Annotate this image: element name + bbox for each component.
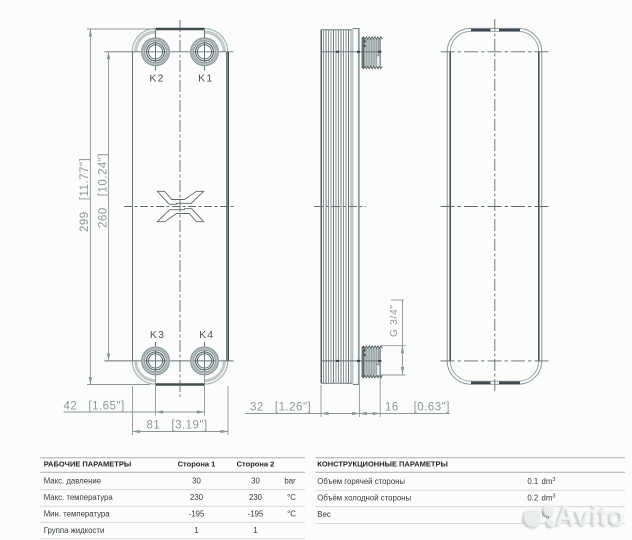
svg-text:260 [10.24"]: 260 [10.24"] [98,153,110,228]
svg-text:-195: -195 [248,510,264,519]
svg-text:Avito: Avito [556,500,626,531]
svg-text:Объем горячей стороны: Объем горячей стороны [317,477,405,486]
svg-text:Вес: Вес [317,510,331,519]
svg-text:K3: K3 [150,329,165,341]
svg-text:-195: -195 [189,510,205,519]
svg-text:°С: °С [287,510,296,519]
svg-text:K2: K2 [149,72,164,84]
svg-text:°С: °С [287,493,296,502]
svg-text:299 [11.77"]: 299 [11.77"] [79,158,91,232]
svg-text:G 3/4": G 3/4" [389,304,400,337]
svg-text:30: 30 [251,477,260,486]
svg-text:81 [3.19"]: 81 [3.19"] [147,420,208,432]
svg-text:Сторона 1: Сторона 1 [178,460,216,469]
svg-text:Макс. давление: Макс. давление [44,477,101,486]
svg-text:32 [1.26"]: 32 [1.26"] [250,402,311,414]
svg-text:0.2: 0.2 [527,494,538,503]
svg-text:0.1: 0.1 [527,477,538,486]
svg-text:Мин. температура: Мин. температура [44,510,111,519]
svg-text:30: 30 [192,477,201,486]
svg-text:K1: K1 [198,72,213,84]
svg-text:1: 1 [194,526,198,535]
svg-text:Макс. температура: Макс. температура [44,493,114,502]
svg-text:Группа жидкости: Группа жидкости [44,526,105,535]
svg-text:16 [0.63"]: 16 [0.63"] [385,402,450,414]
svg-text:Объём холодной стороны: Объём холодной стороны [317,494,411,503]
svg-text:1: 1 [253,526,257,535]
svg-text:K4: K4 [199,329,214,341]
svg-text:bar: bar [284,477,296,486]
svg-text:230: 230 [190,493,204,502]
svg-text:Сторона 2: Сторона 2 [237,460,275,469]
svg-text:42 [1.65"]: 42 [1.65"] [64,401,125,413]
svg-text:РАБОЧИЕ ПАРАМЕТРЫ: РАБОЧИЕ ПАРАМЕТРЫ [44,460,131,469]
svg-text:230: 230 [249,493,263,502]
svg-text:КОНСТРУКЦИОННЫЕ ПАРАМЕТРЫ: КОНСТРУКЦИОННЫЕ ПАРАМЕТРЫ [317,460,448,469]
